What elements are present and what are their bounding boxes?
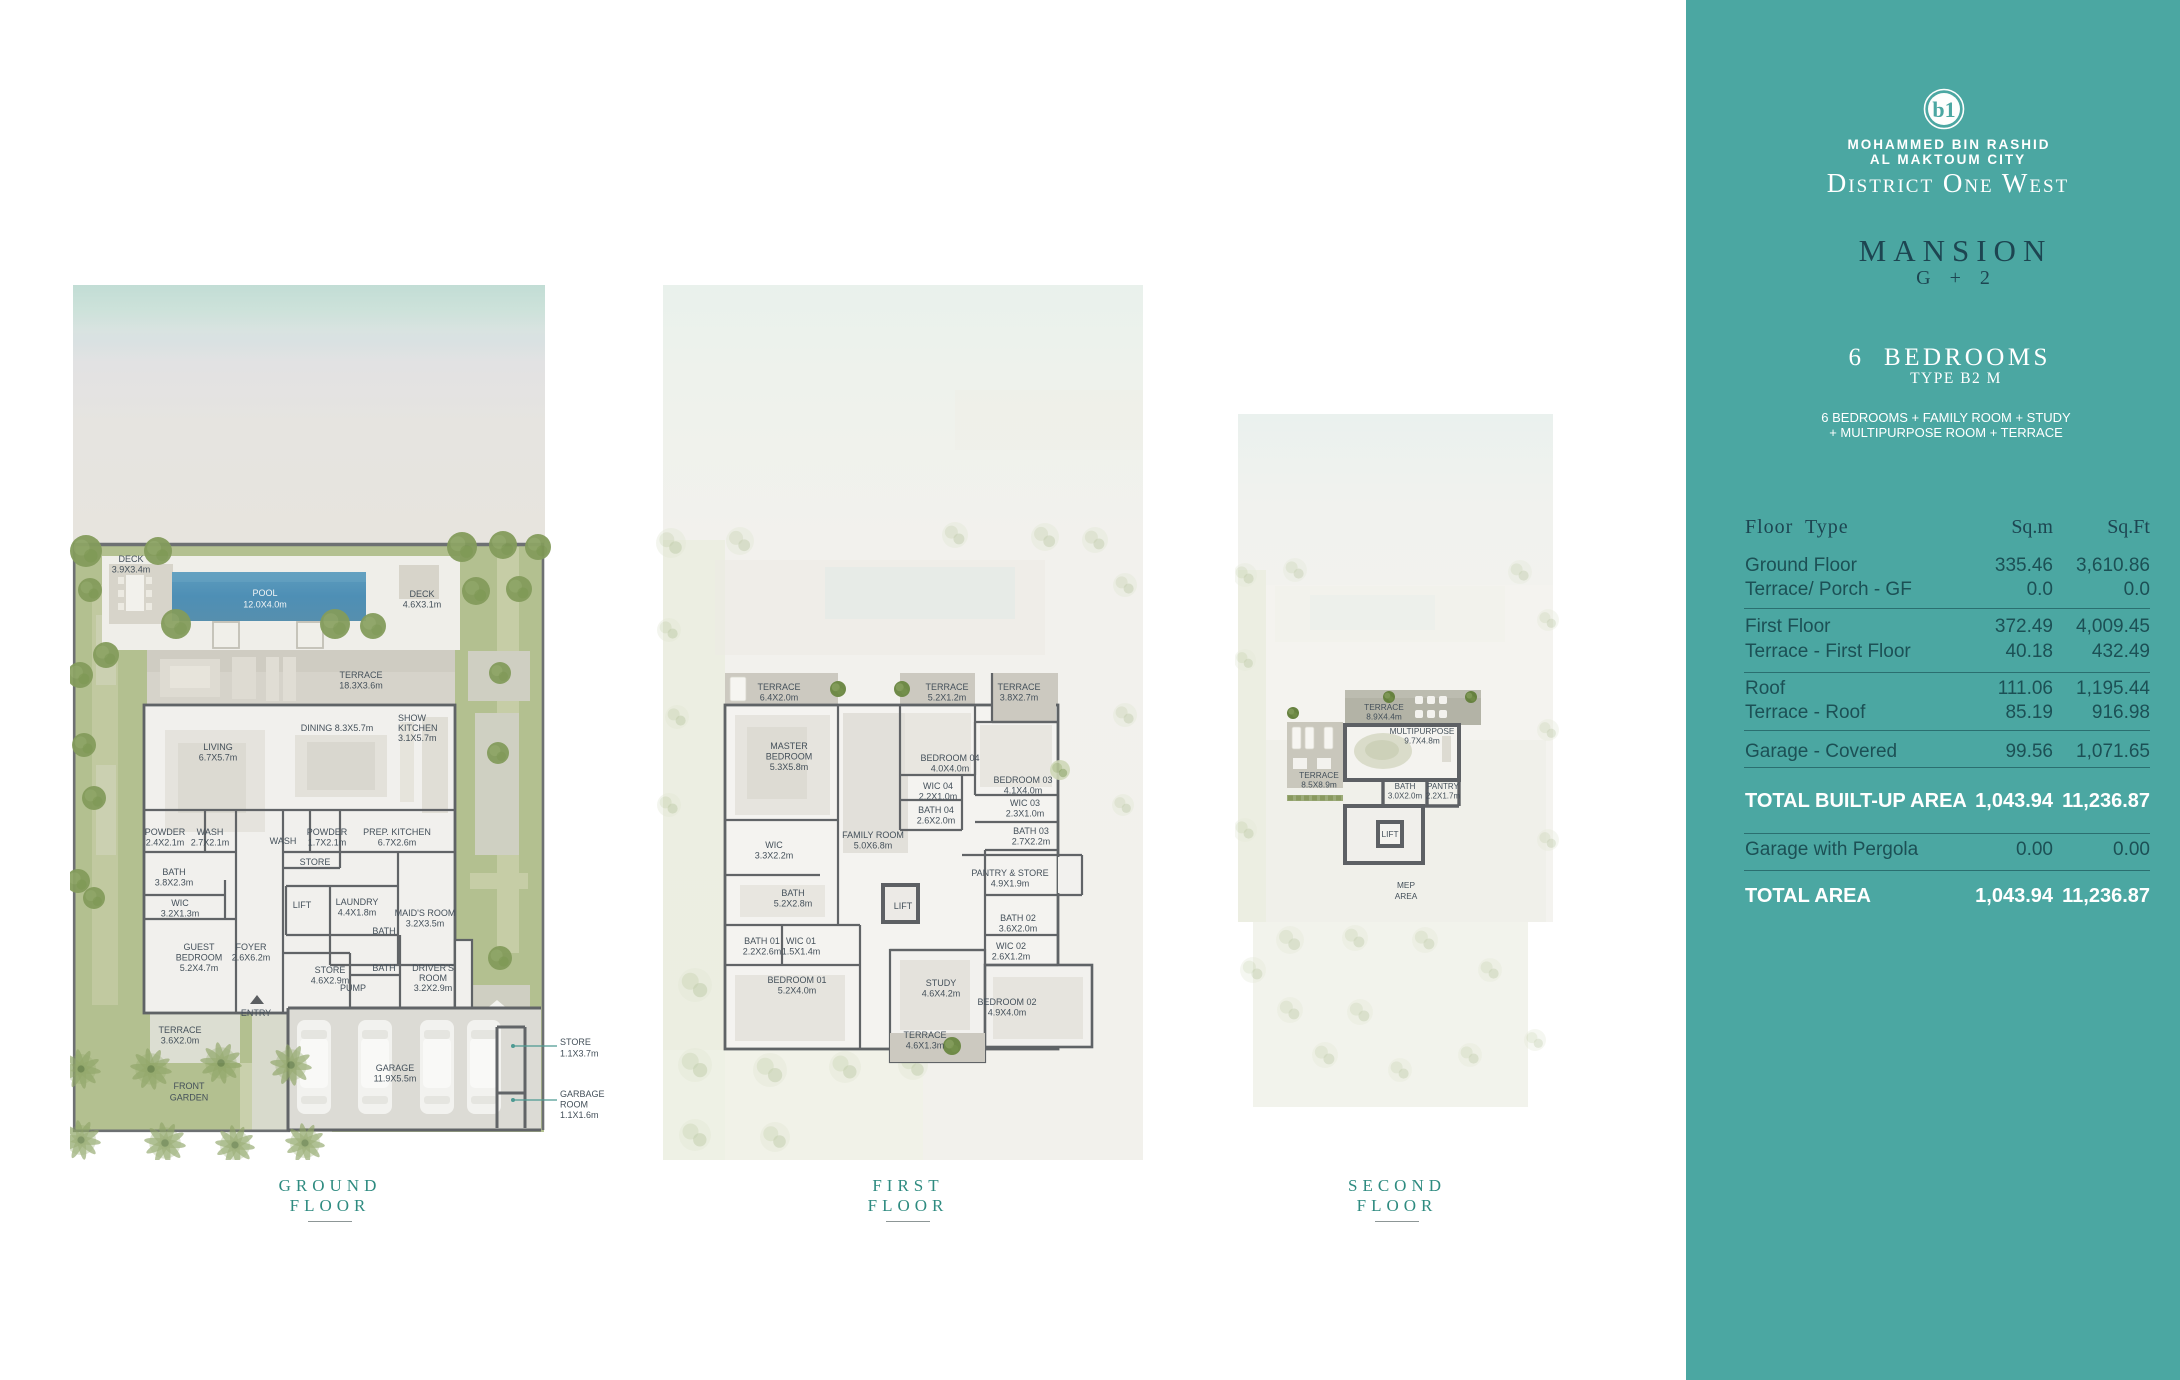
- svg-text:DECK: DECK: [118, 554, 143, 564]
- svg-text:STUDY: STUDY: [926, 978, 957, 988]
- svg-text:GARDEN: GARDEN: [170, 1093, 209, 1103]
- svg-text:2.7X2.1m: 2.7X2.1m: [191, 838, 230, 848]
- svg-text:ENTRY: ENTRY: [241, 1008, 271, 1018]
- svg-text:4.9X1.9m: 4.9X1.9m: [991, 879, 1030, 889]
- svg-text:DECK: DECK: [409, 589, 434, 599]
- svg-text:BEDROOM 02: BEDROOM 02: [977, 997, 1036, 1007]
- svg-text:5.0X6.8m: 5.0X6.8m: [854, 841, 893, 851]
- svg-text:4.4X1.8m: 4.4X1.8m: [338, 908, 377, 918]
- svg-text:WASH: WASH: [197, 827, 224, 837]
- svg-text:6.4X2.0m: 6.4X2.0m: [760, 693, 799, 703]
- svg-text:3.8X2.7m: 3.8X2.7m: [1000, 693, 1039, 703]
- svg-text:KITCHEN: KITCHEN: [398, 723, 438, 733]
- svg-text:STORE: STORE: [300, 857, 331, 867]
- svg-text:BATH: BATH: [372, 963, 395, 973]
- svg-text:MASTER: MASTER: [770, 741, 808, 751]
- svg-text:BEDROOM 04: BEDROOM 04: [920, 753, 979, 763]
- svg-text:5.2X2.8m: 5.2X2.8m: [774, 899, 813, 909]
- svg-text:SHOW: SHOW: [398, 713, 427, 723]
- svg-text:3.8X2.3m: 3.8X2.3m: [155, 878, 194, 888]
- svg-text:LIVING: LIVING: [203, 742, 233, 752]
- svg-text:2.6X2.0m: 2.6X2.0m: [917, 816, 956, 826]
- svg-text:3.1X5.7m: 3.1X5.7m: [398, 733, 437, 743]
- svg-text:STORE: STORE: [315, 965, 346, 975]
- svg-text:BATH: BATH: [781, 888, 804, 898]
- svg-text:3.6X2.0m: 3.6X2.0m: [999, 924, 1038, 934]
- svg-text:WIC 02: WIC 02: [996, 941, 1026, 951]
- svg-text:PANTRY & STORE: PANTRY & STORE: [971, 868, 1048, 878]
- svg-text:DINING 8.3X5.7m: DINING 8.3X5.7m: [301, 723, 374, 733]
- svg-text:BEDROOM 01: BEDROOM 01: [767, 975, 826, 985]
- svg-text:6.7X5.7m: 6.7X5.7m: [199, 753, 238, 763]
- svg-text:BEDROOM: BEDROOM: [766, 752, 813, 762]
- svg-text:BATH: BATH: [1395, 782, 1416, 791]
- svg-text:9.7X4.8m: 9.7X4.8m: [1404, 736, 1440, 746]
- svg-text:BATH 01: BATH 01: [744, 936, 780, 946]
- svg-text:8.9X4.4m: 8.9X4.4m: [1366, 712, 1402, 722]
- svg-text:LIFT: LIFT: [1381, 829, 1398, 839]
- svg-text:TERRACE: TERRACE: [158, 1025, 201, 1035]
- svg-text:2.6X1.2m: 2.6X1.2m: [992, 952, 1031, 962]
- svg-text:1.7X2.1m: 1.7X2.1m: [308, 838, 347, 848]
- svg-text:WIC 04: WIC 04: [923, 781, 953, 791]
- svg-text:DRIVER'S: DRIVER'S: [412, 963, 454, 973]
- svg-text:8.5X8.9m: 8.5X8.9m: [1301, 780, 1337, 790]
- svg-text:GARBAGE: GARBAGE: [560, 1089, 605, 1099]
- svg-text:BATH 04: BATH 04: [918, 805, 954, 815]
- svg-text:5.2X4.7m: 5.2X4.7m: [180, 963, 219, 973]
- svg-text:1.1X3.7m: 1.1X3.7m: [560, 1049, 599, 1059]
- svg-text:2.4X2.1m: 2.4X2.1m: [146, 838, 185, 848]
- svg-text:5.3X5.8m: 5.3X5.8m: [770, 762, 809, 772]
- svg-text:BATH 03: BATH 03: [1013, 826, 1049, 836]
- svg-text:FOYER: FOYER: [235, 942, 267, 952]
- svg-text:ROOM: ROOM: [419, 973, 447, 983]
- svg-text:LIFT: LIFT: [293, 900, 312, 910]
- svg-text:12.0X4.0m: 12.0X4.0m: [243, 600, 287, 610]
- svg-text:2.2X1.7m: 2.2X1.7m: [1426, 792, 1461, 801]
- svg-text:5.2X4.0m: 5.2X4.0m: [778, 986, 817, 996]
- svg-text:PREP. KITCHEN: PREP. KITCHEN: [363, 827, 431, 837]
- svg-text:WIC: WIC: [171, 898, 189, 908]
- svg-text:TERRACE: TERRACE: [1364, 702, 1404, 712]
- svg-text:6.7X2.6m: 6.7X2.6m: [378, 838, 417, 848]
- svg-text:3.0X2.0m: 3.0X2.0m: [1388, 792, 1423, 801]
- svg-text:WIC: WIC: [765, 840, 783, 850]
- svg-text:18.3X3.6m: 18.3X3.6m: [339, 681, 383, 691]
- svg-text:LIFT: LIFT: [894, 901, 913, 911]
- svg-text:PANTRY: PANTRY: [1427, 782, 1459, 791]
- svg-text:TERRACE: TERRACE: [925, 682, 968, 692]
- svg-text:AREA: AREA: [1395, 891, 1418, 901]
- svg-text:11.9X5.5m: 11.9X5.5m: [374, 1074, 417, 1084]
- svg-text:2.3X1.0m: 2.3X1.0m: [1006, 809, 1045, 819]
- svg-text:3.3X2.2m: 3.3X2.2m: [755, 851, 794, 861]
- svg-text:BATH: BATH: [162, 867, 185, 877]
- svg-text:BEDROOM 03: BEDROOM 03: [993, 775, 1052, 785]
- svg-text:2.7X2.2m: 2.7X2.2m: [1012, 837, 1051, 847]
- svg-text:3.2X2.9m: 3.2X2.9m: [414, 983, 453, 993]
- svg-text:2.2X1.0m: 2.2X1.0m: [919, 792, 958, 802]
- svg-text:4.6X3.1m: 4.6X3.1m: [403, 600, 442, 610]
- svg-text:BEDROOM: BEDROOM: [176, 953, 223, 963]
- svg-text:LAUNDRY: LAUNDRY: [336, 897, 379, 907]
- svg-text:STORE: STORE: [560, 1037, 591, 1047]
- svg-text:GARAGE: GARAGE: [376, 1063, 415, 1073]
- svg-text:TERRACE: TERRACE: [997, 682, 1040, 692]
- svg-text:BATH 02: BATH 02: [1000, 913, 1036, 923]
- svg-text:3.9X3.4m: 3.9X3.4m: [112, 565, 151, 575]
- svg-text:2.6X6.2m: 2.6X6.2m: [232, 953, 271, 963]
- svg-text:1.5X1.4m: 1.5X1.4m: [782, 947, 821, 957]
- svg-text:TERRACE: TERRACE: [903, 1030, 946, 1040]
- svg-text:4.0X4.0m: 4.0X4.0m: [931, 764, 970, 774]
- svg-text:BATH: BATH: [372, 926, 395, 936]
- svg-text:4.6X4.2m: 4.6X4.2m: [922, 989, 961, 999]
- svg-text:4.6X1.3m: 4.6X1.3m: [906, 1041, 945, 1051]
- svg-text:POWDER: POWDER: [145, 827, 186, 837]
- svg-text:WIC 03: WIC 03: [1010, 798, 1040, 808]
- svg-text:FAMILY ROOM: FAMILY ROOM: [842, 830, 904, 840]
- svg-text:ROOM: ROOM: [560, 1100, 588, 1110]
- svg-text:POOL: POOL: [252, 588, 277, 598]
- svg-text:WIC 01: WIC 01: [786, 936, 816, 946]
- svg-text:3.2X3.5m: 3.2X3.5m: [406, 919, 445, 929]
- svg-text:4.9X4.0m: 4.9X4.0m: [988, 1008, 1027, 1018]
- svg-text:1.1X1.6m: 1.1X1.6m: [560, 1110, 599, 1120]
- svg-text:MAID'S ROOM: MAID'S ROOM: [395, 908, 456, 918]
- svg-text:TERRACE: TERRACE: [757, 682, 800, 692]
- svg-text:3.2X1.3m: 3.2X1.3m: [161, 909, 200, 919]
- svg-text:POWDER: POWDER: [307, 827, 348, 837]
- svg-text:5.2X1.2m: 5.2X1.2m: [928, 693, 967, 703]
- svg-text:b1: b1: [1932, 97, 1955, 122]
- svg-text:WASH: WASH: [270, 836, 297, 846]
- svg-text:MEP: MEP: [1397, 880, 1415, 890]
- svg-text:GUEST: GUEST: [183, 942, 215, 952]
- svg-text:TERRACE: TERRACE: [1299, 770, 1339, 780]
- svg-text:PUMP: PUMP: [340, 983, 366, 993]
- svg-text:FRONT: FRONT: [174, 1081, 205, 1091]
- svg-text:TERRACE: TERRACE: [339, 670, 382, 680]
- svg-text:4.1X4.0m: 4.1X4.0m: [1004, 786, 1043, 796]
- svg-text:3.6X2.0m: 3.6X2.0m: [161, 1036, 200, 1046]
- svg-text:2.2X2.6m: 2.2X2.6m: [743, 947, 782, 957]
- svg-text:MULTIPURPOSE: MULTIPURPOSE: [1390, 726, 1455, 736]
